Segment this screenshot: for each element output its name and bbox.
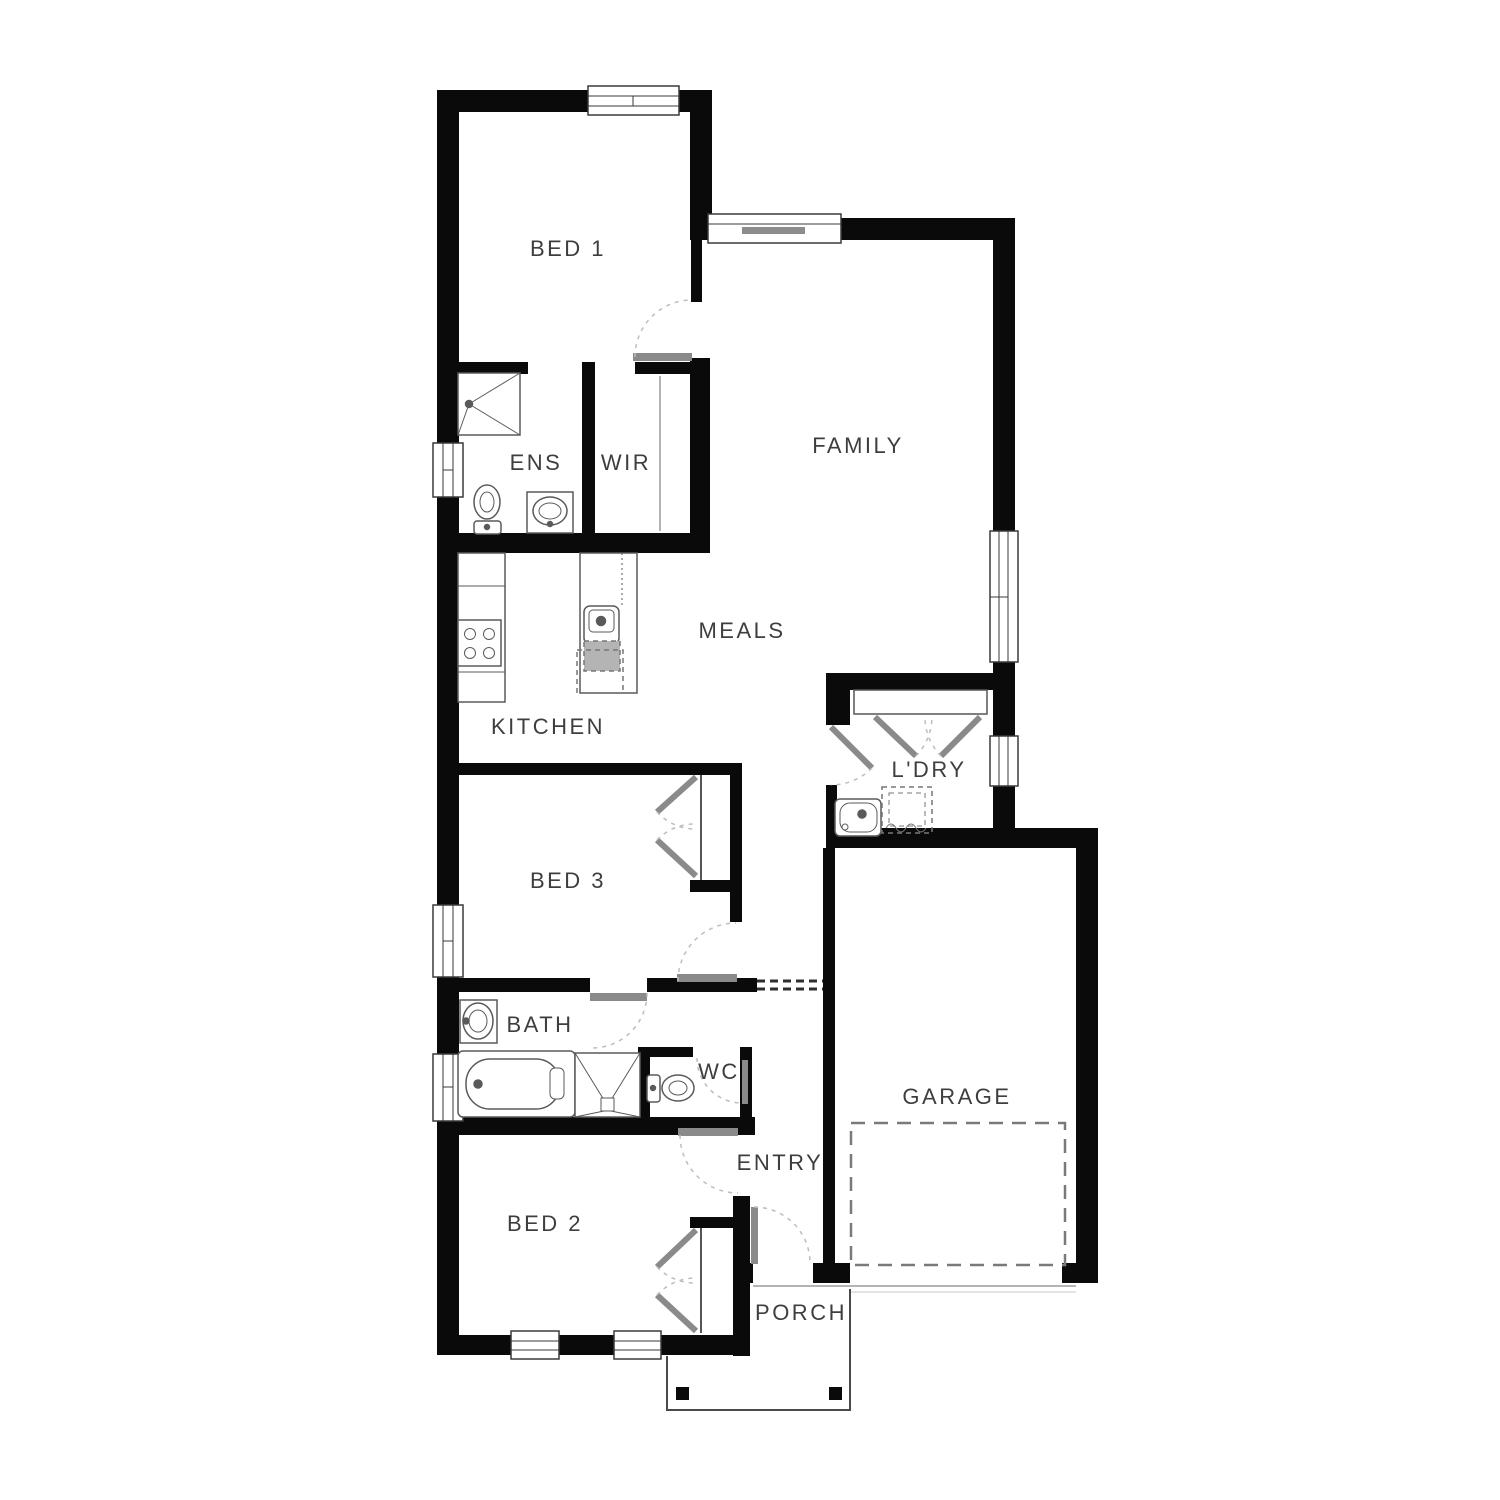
kitchen-bench [458,553,505,702]
wall-garage-right [1076,848,1098,1263]
door-leaf-wc [742,1060,748,1104]
wall-left-2 [437,493,459,909]
wall-wir-top [635,362,700,374]
room-label-family: FAMILY [812,433,904,459]
wall-ldry-left-stub [826,673,850,725]
wall-family-right-1 [993,218,1015,533]
wall-left-1 [437,90,459,447]
porch-post-right [829,1387,842,1400]
wall-bed3-right [730,763,742,922]
bed3-robe-door-lower [657,840,696,876]
ldry-cupboard-arc-right [925,717,941,756]
wall-garage-left [823,848,835,1263]
dashed-elements [753,981,1076,1292]
garage-car-bay-dashed [851,1123,1065,1265]
door-arc-ldry [831,768,872,785]
room-label-garage: GARAGE [902,1084,1011,1110]
bed3-robe-arc-upper [657,812,696,829]
wall-left-4 [437,1117,459,1355]
wall-top-bed1-left [437,90,588,112]
bed2-robe-door-lower [657,1295,696,1331]
window-bed2-right [614,1331,661,1359]
door-leaf-bath [590,993,647,1001]
room-label-wir: WIR [601,450,651,476]
door-arc-bath [592,993,647,1048]
wall-wc-top [638,1047,693,1057]
wall-bed2-bottom-3 [657,1335,742,1355]
wall-family-top [837,218,1015,240]
bed3-robe-arc-lower [657,824,696,840]
room-label-ldry: L'DRY [892,757,967,783]
toilet-ens [474,485,501,534]
laundry-sink [835,799,881,836]
wall-ens-wir-divider [582,362,595,534]
window-bed3 [433,905,463,977]
room-label-porch: PORCH [755,1300,847,1326]
room-label-bed2: BED 2 [507,1211,583,1237]
wall-bed3-top [458,763,742,775]
room-label-entry: ENTRY [737,1150,824,1176]
ldry-cupboard [854,690,987,714]
toilet-wc [647,1075,694,1102]
ldry-cupboard-door-right [941,717,980,756]
floor-plan: BED 1 FAMILY ENS WIR MEALS KITCHEN L'DRY… [0,0,1500,1500]
room-label-wc: WC [698,1059,740,1085]
wall-ens-top [458,362,528,374]
room-label-ens: ENS [510,450,563,476]
wall-bath-top-left [437,978,590,992]
window-ens [433,443,463,497]
window-family-right [990,531,1018,662]
ldry-cupboard-door-left [875,717,916,756]
wall-entry-bottom-left [740,1263,753,1283]
washing-machine [882,787,932,833]
door-leaf-ldry [831,727,872,768]
porch-post-left [676,1387,689,1400]
wall-ldry-top [826,673,1005,690]
room-label-bath: BATH [506,1012,573,1038]
door-leaf-bed3 [677,974,737,982]
wall-bed2-robe-stub [690,1217,743,1228]
door-leaf-bed1 [633,353,692,361]
kitchen-island [577,553,637,693]
window-bed2-left [511,1331,559,1359]
window-ldry [990,736,1018,786]
vanity-bath [460,1000,497,1043]
wall-bed1-right-thin [691,240,702,302]
bed2-robe-door-upper [657,1230,696,1267]
door-arc-front [754,1207,810,1263]
bed2-robe-arc-upper [657,1267,696,1283]
door-arc-bed3 [678,923,736,981]
window-family-top [708,214,841,243]
door-arc-bed2 [680,1135,738,1193]
wall-garage-corner-right [1062,1263,1098,1283]
bathtub [458,1051,575,1117]
door-leaf-front [751,1207,758,1264]
wall-bed2-bottom-1 [437,1335,515,1355]
window-bed1 [588,86,679,115]
door-arc-bed1 [635,300,692,357]
bed2-robe-arc-lower [657,1278,696,1295]
wall-family-right-2 [993,660,1015,740]
wall-wir-right [690,358,710,534]
shower-bath [575,1053,640,1117]
room-label-bed3: BED 3 [530,868,606,894]
ldry-cupboard-arc-left [916,717,932,756]
room-label-meals: MEALS [698,618,785,644]
wall-bed2-bottom-2 [555,1335,618,1355]
wall-bed3-robe-stub [690,880,742,892]
floor-plan-drawing [0,0,1500,1500]
dishwasher [584,641,620,671]
vanity-ens [527,492,573,533]
wall-kitchen-top [437,533,710,553]
room-label-kitchen: KITCHEN [491,714,605,740]
cooktop [458,620,501,666]
door-leaf-bed2 [678,1128,738,1136]
shower-ens [458,373,520,435]
bed3-robe-door-upper [657,777,696,812]
wall-entry-corner-right [813,1263,850,1283]
room-label-bed1: BED 1 [530,236,606,262]
